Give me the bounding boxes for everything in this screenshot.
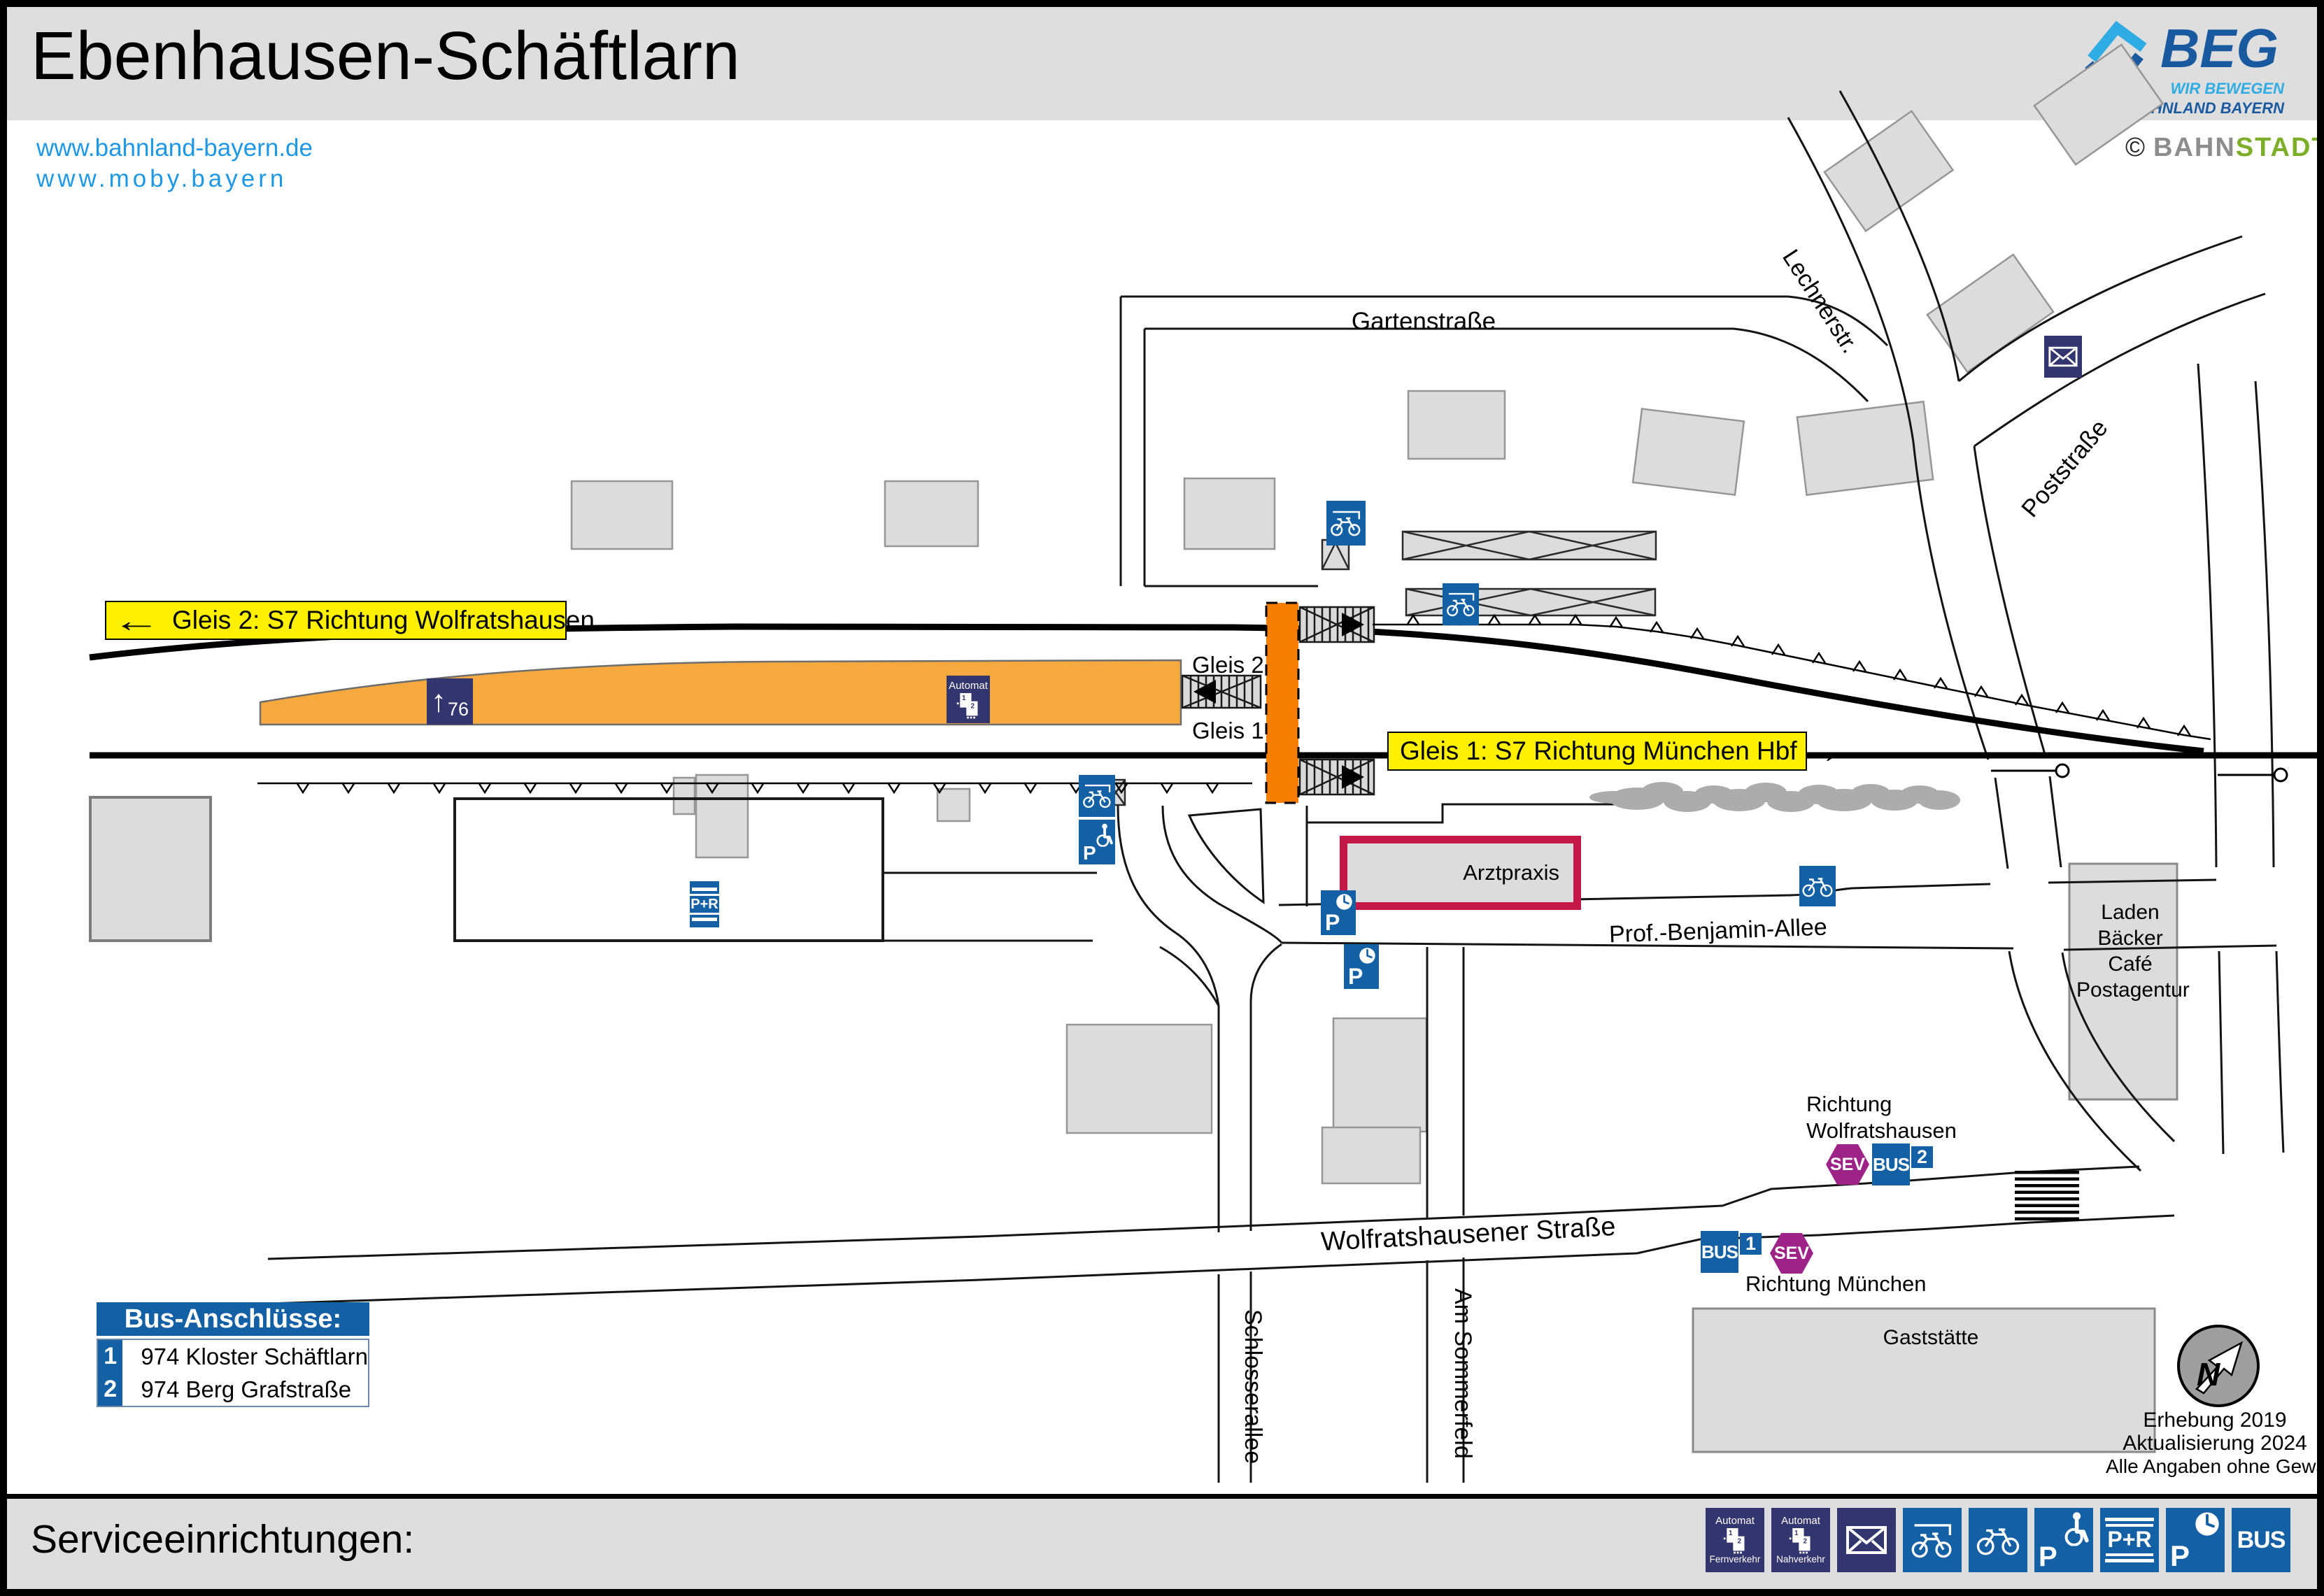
svg-text:1: 1 (1794, 1530, 1799, 1537)
station-map-page: Ebenhausen-Schäftlarn www.bahnland-bayer… (0, 0, 2324, 1596)
richtung-wolfratshausen-label: Richtung Wolfratshausen (1806, 1091, 1957, 1144)
wheelchair-icon (1095, 822, 1113, 848)
richtung-muenchen-label: Richtung München (1745, 1271, 1927, 1297)
covered-bike-icon (1446, 591, 1476, 618)
survey-notes: Erhebung 2019 Aktualisierung 2024 Alle A… (2106, 1409, 2324, 1478)
footer-covered-bike-parking-icon (1903, 1508, 1962, 1572)
covered-bike-icon (1330, 509, 1362, 537)
bus-stop-2-icon: BUS (1872, 1143, 1910, 1185)
bus-stop-2-number: 2 (1911, 1146, 1933, 1168)
street-schlosserallee: Schlosserallee (1239, 1309, 1266, 1464)
laden-label: Laden Bäcker Café Postagentur (2076, 899, 2184, 1003)
footer-ticket-machine-longdistance-icon: Automat 1 2 Fernverkehr (1706, 1508, 1764, 1572)
legend-route-2-label: 974 Berg Grafstraße (141, 1376, 368, 1403)
arztpraxis-building: Arztpraxis (1340, 836, 1581, 910)
bus-stop-1-icon: BUS (1701, 1231, 1738, 1273)
park-and-ride-lot (455, 799, 883, 941)
west-arrow-icon: ← (113, 604, 161, 636)
bike-icon (1976, 1525, 2020, 1555)
street-gartenstrasse: Gartenstraße (1322, 308, 1525, 336)
legend-route-1-number: 1 (98, 1340, 122, 1373)
accessible-parking-map-icon: P (1079, 820, 1115, 864)
footer-mailbox-icon (1837, 1508, 1896, 1572)
clock-icon (2193, 1510, 2221, 1538)
north-arrow: N (2177, 1325, 2260, 1407)
wheelchair-icon (2062, 1510, 2089, 1548)
svg-text:2: 2 (1804, 1538, 1808, 1546)
footer-accessible-parking-icon: P (2034, 1508, 2093, 1572)
crossing-gates (1991, 764, 2287, 781)
ticket-machine-platform-icon: Automat 1 2 (947, 676, 990, 723)
platform (260, 660, 1181, 725)
footer-title: Serviceeinrichtungen: (31, 1516, 414, 1562)
gleis1-direction-label: Gleis 1: S7 Richtung München Hbf → (1387, 732, 1807, 771)
bike-parking-map-icon (1799, 866, 1836, 906)
east-arrow-icon: → (1796, 735, 1844, 767)
bus-legend-body: 1 2 974 Kloster Schäftlarn 974 Berg Graf… (97, 1339, 369, 1407)
clock-icon (1335, 892, 1354, 911)
ticket-machine-glyph: 1 2 (1722, 1527, 1748, 1554)
park-and-ride-map-icon: P+R (690, 881, 719, 927)
ticket-machine-glyph: 1 2 (1788, 1527, 1813, 1554)
ticket-machine-glyph: 1 2 (956, 692, 981, 719)
footer-park-and-ride-icon: P+R (2100, 1508, 2159, 1572)
platform-height-76-icon: ↑ 76 (427, 678, 473, 725)
gleis2-direction-label: ← Gleis 2: S7 Richtung Wolfratshausen (105, 601, 567, 640)
clock-icon (1358, 946, 1377, 965)
covered-bike-icon (1082, 783, 1112, 809)
bike-icon (1802, 876, 1833, 897)
svg-text:2: 2 (971, 702, 975, 710)
footer-bike-parking-icon (1969, 1508, 2027, 1572)
footer-short-term-parking-icon: P (2166, 1508, 2225, 1572)
bus-stop-1-number: 1 (1740, 1233, 1762, 1255)
legend-route-1-label: 974 Kloster Schäftlarn (141, 1344, 368, 1370)
hedge (1589, 782, 1960, 812)
legend-route-2-number: 2 (98, 1373, 122, 1406)
zebra-crossing (2015, 1171, 2079, 1220)
north-letter: N (2197, 1355, 2220, 1393)
covered-bike-parking-icon-north (1326, 501, 1366, 546)
footer-ticket-machine-local-icon: Automat 1 2 Nahverkehr (1771, 1508, 1830, 1572)
footer-bus-icon: BUS (2232, 1508, 2290, 1572)
envelope-icon (1845, 1524, 1888, 1556)
gleis1-track-label: Gleis 1 (1192, 718, 1264, 744)
short-term-parking-icon-1: P (1321, 890, 1356, 935)
bus-legend-title: Bus-Anschlüsse: (97, 1302, 369, 1336)
gleis2-track-label: Gleis 2 (1192, 652, 1264, 678)
street-am-sommerfeld: Am Sommerfeld (1449, 1288, 1476, 1459)
covered-bike-parking-icon-east (1443, 583, 1479, 625)
gaststaette-label: Gaststätte (1826, 1326, 2036, 1350)
buildings (90, 45, 2177, 1452)
svg-text:1: 1 (1729, 1530, 1733, 1537)
mailbox-map-icon (2044, 336, 2082, 378)
svg-text:2: 2 (1738, 1538, 1742, 1546)
short-term-parking-icon-2: P (1344, 944, 1379, 989)
arztpraxis-label: Arztpraxis (1463, 860, 1559, 885)
covered-bike-icon (1911, 1522, 1954, 1559)
envelope-icon (2048, 345, 2078, 369)
covered-bike-parking-icon-south (1079, 775, 1115, 817)
traffic-island (1189, 809, 1263, 902)
track-crossing-orange (1266, 603, 1298, 803)
svg-text:1: 1 (962, 694, 966, 701)
